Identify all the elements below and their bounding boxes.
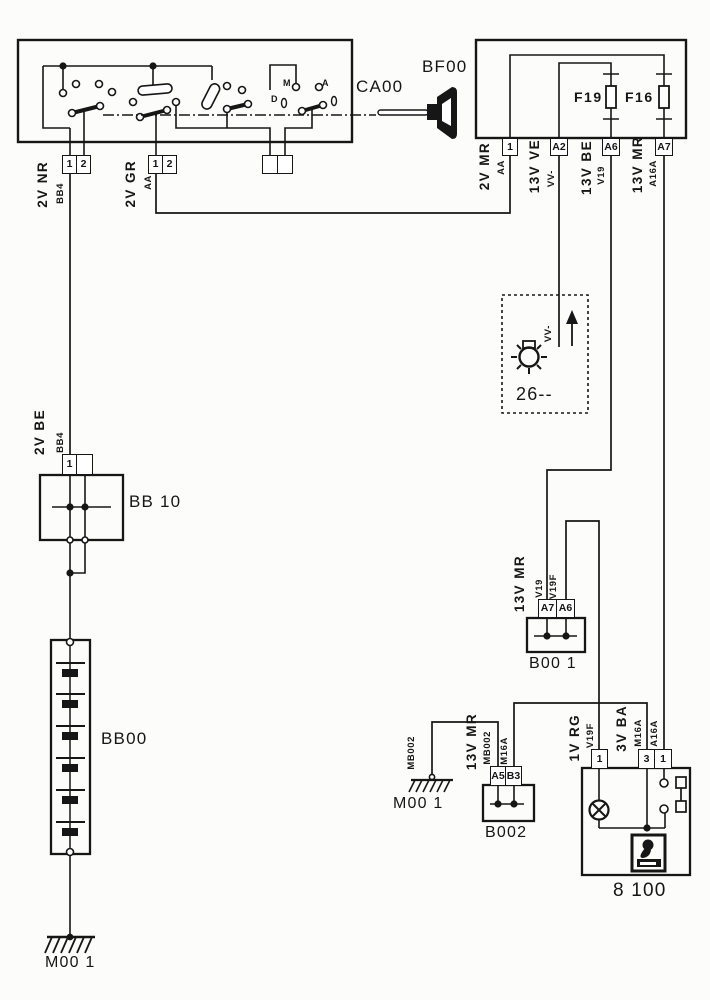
label-m001-left: M00 1 (45, 955, 95, 971)
pin-ca00-g2-1: 1 (148, 155, 163, 174)
b001-internals (534, 618, 577, 639)
pin-bb10-2 (76, 454, 93, 475)
lamp-icon (590, 801, 609, 820)
pin-ca00-g1-2: 2 (76, 155, 91, 174)
pin-b001-a6: A6 (556, 599, 575, 618)
heater-element-icon (676, 777, 686, 812)
pin-ca00-g3-1 (262, 155, 278, 174)
wire-code-a16a: A16A (649, 160, 659, 187)
wire-label-13v-be: 13V BE (580, 140, 595, 195)
direction-arrow-icon (566, 310, 578, 346)
pin-b002-a5: A5 (490, 766, 506, 786)
wire-code-a16a-2: A16A (650, 720, 660, 747)
ground-icon-left (45, 934, 95, 953)
bulb-icon (511, 341, 547, 374)
fuse-f16 (659, 86, 669, 108)
pin-8100-1-right: 1 (654, 749, 672, 769)
wire-code-m16a: M16A (500, 737, 510, 765)
label-m001-right: M00 1 (393, 796, 443, 812)
label-b002: B002 (485, 825, 527, 841)
b002-internals (490, 786, 524, 807)
b001-box (527, 618, 585, 652)
pin-ca00-g2-2: 2 (162, 155, 177, 174)
switch-pos-a: A (322, 79, 329, 88)
pin-bf00-a6: A6 (602, 138, 620, 156)
label-fuse-f16: F16 (625, 90, 654, 104)
wire-code-v19: V19 (597, 166, 607, 185)
pin-bf00-a2: A2 (550, 138, 568, 156)
wire-label-b002: 13V MR (465, 713, 480, 770)
wire-code-mb002: MB002 (483, 731, 493, 765)
wire-label-3v-ba: 3V BA (615, 705, 630, 752)
label-ca00: CA00 (356, 78, 403, 95)
wire-code-vv: VV- (547, 170, 557, 187)
ground-icon-right (409, 774, 453, 792)
pin-ca00-g1-1: 1 (62, 155, 77, 174)
pin-bf00-a7: A7 (655, 138, 673, 156)
wiring-diagram: 1 2 1 2 1 A2 A6 A7 1 A7 A6 A5 B3 1 3 1 C… (0, 0, 710, 1000)
label-fuse-f19: F19 (574, 90, 603, 104)
wire-code-bb4-2: BB4 (56, 432, 66, 453)
switch-pos-m: M (283, 79, 291, 88)
wire-label-2v-be: 2V BE (33, 409, 48, 455)
label-bb00: BB00 (101, 730, 147, 747)
unit-8100-internals (590, 769, 687, 871)
label-bf00: BF00 (422, 58, 467, 75)
wire-label-13v-mr: 13V MR (631, 136, 646, 193)
switch-pos-d: D (271, 95, 278, 104)
fuse-f19 (606, 86, 616, 108)
pin-8100-3: 3 (638, 749, 655, 769)
pin-bb10-1: 1 (62, 454, 77, 475)
wire-code-v19f: V19F (549, 574, 559, 599)
b002-box (483, 785, 534, 821)
wire-code-v19f-2: V19F (586, 723, 596, 748)
wire-13v-be-v19 (547, 155, 611, 601)
wire-code-vv-2: VV- (544, 325, 554, 342)
pin-8100-1-left: 1 (591, 749, 608, 769)
wire-label-2v-mr: 2V MR (478, 142, 493, 190)
wire-label-b001: 13V MR (513, 555, 528, 612)
pin-bf00-1: 1 (502, 138, 518, 156)
wire-label-13v-ve: 13V VE (528, 139, 543, 193)
pin-b002-b3: B3 (505, 766, 522, 786)
cigar-lighter-icon (632, 835, 665, 871)
pin-b001-a7: A7 (538, 599, 557, 618)
label-bb10: BB 10 (129, 493, 181, 510)
ca00-box (18, 40, 352, 142)
wire-2v-gr-mr (156, 155, 510, 213)
bb10-internals (52, 474, 111, 638)
bb00-battery-cells (56, 639, 85, 938)
label-8100: 8 100 (613, 881, 667, 900)
wire-code-m16a-2: M16A (634, 719, 644, 747)
label-b001: B00 1 (529, 656, 577, 672)
pin-ca00-g3-2 (277, 155, 293, 174)
label-box26: 26-- (516, 385, 553, 403)
wire-code-mb002-2: MB002 (407, 736, 417, 770)
harness-wires (70, 155, 664, 777)
wire-code-aa-2: AA (497, 160, 507, 175)
wire-code-bb4: BB4 (56, 183, 66, 204)
wire-label-1v-rg: 1V RG (568, 714, 583, 762)
wire-label-2v-gr: 2V GR (124, 160, 139, 208)
wire-code-v19-2: V19 (535, 579, 545, 598)
wire-code-aa: AA (144, 175, 154, 190)
wire-label-2v-nr: 2V NR (36, 161, 51, 208)
